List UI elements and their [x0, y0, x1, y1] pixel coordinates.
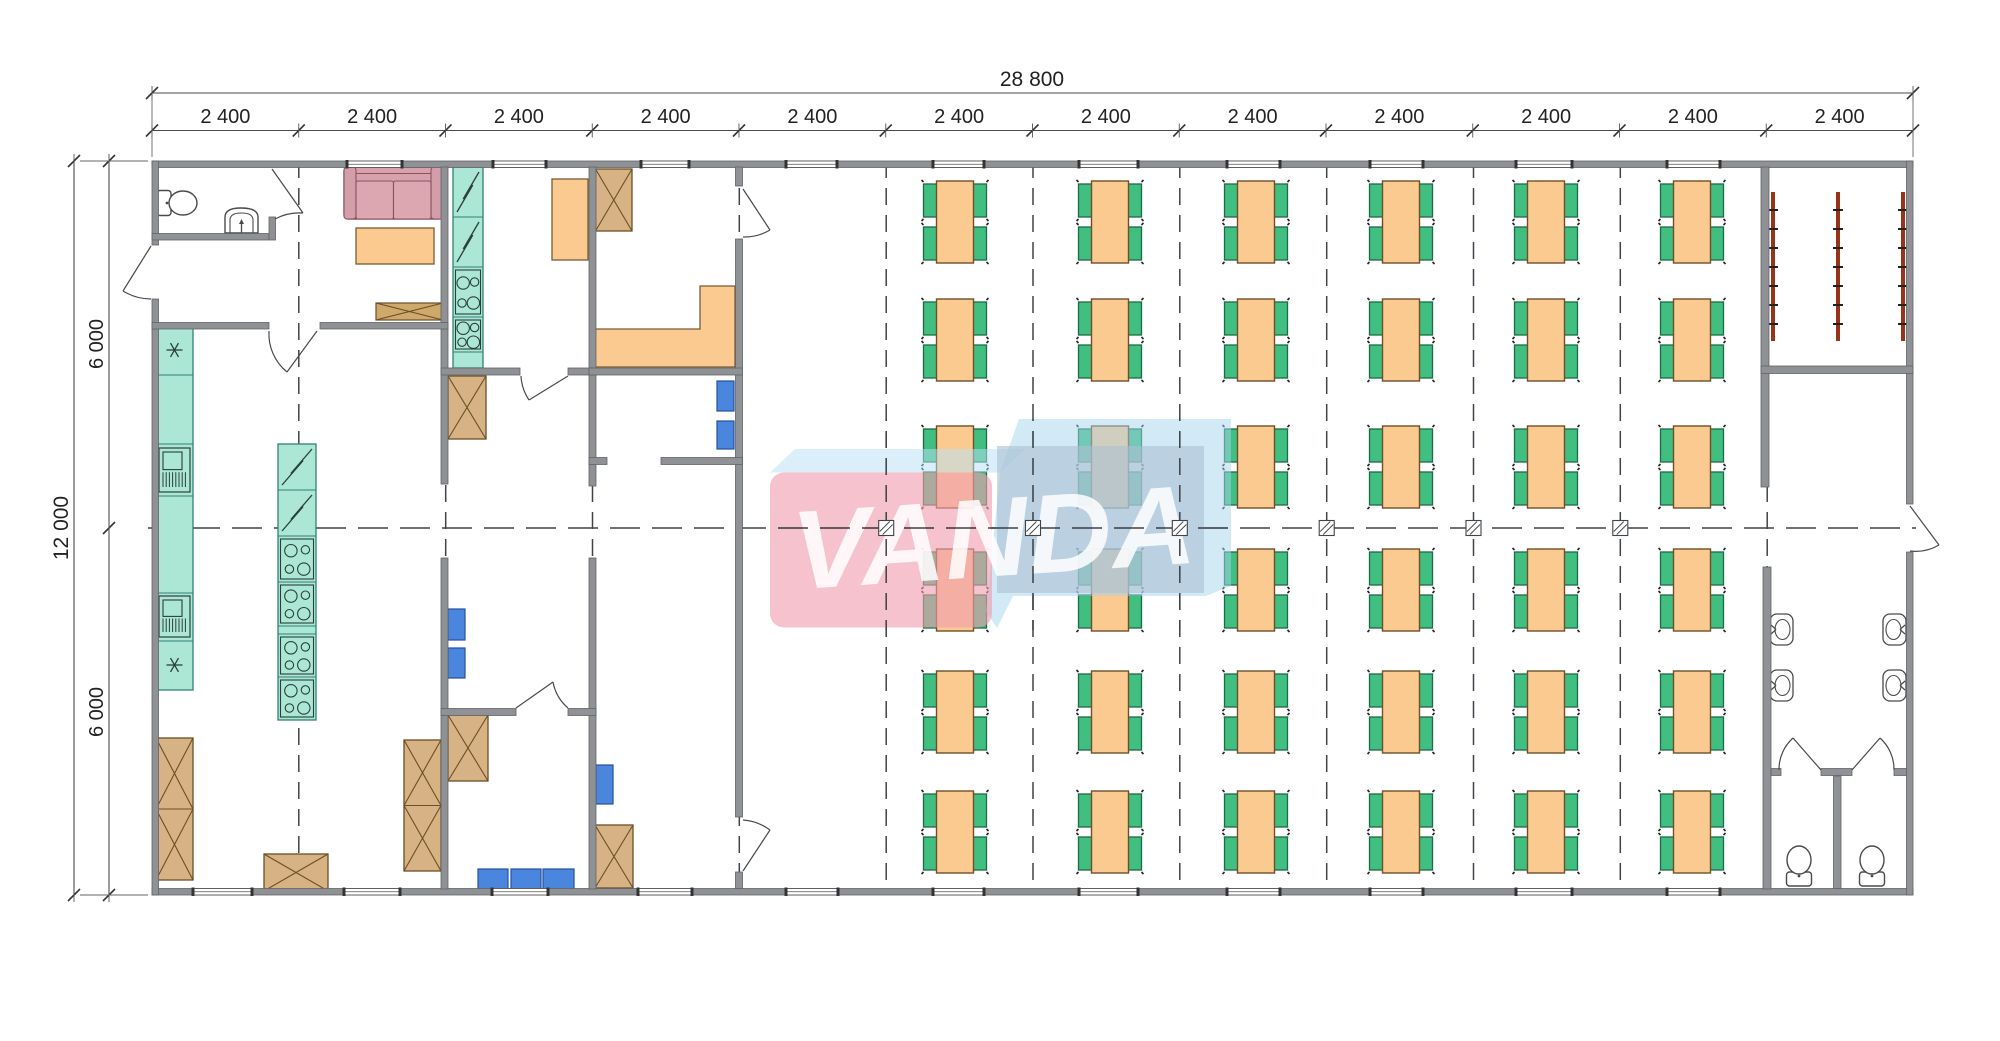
svg-text:28 800: 28 800	[1000, 68, 1064, 91]
svg-text:2 400: 2 400	[1228, 106, 1278, 128]
svg-text:2 400: 2 400	[1081, 106, 1131, 128]
svg-text:2 400: 2 400	[1521, 106, 1571, 128]
svg-text:VANDA: VANDA	[788, 462, 1199, 613]
svg-text:6 000: 6 000	[86, 687, 108, 737]
svg-text:12 000: 12 000	[50, 496, 73, 560]
svg-text:6 000: 6 000	[86, 319, 108, 369]
svg-text:2 400: 2 400	[494, 106, 544, 128]
svg-text:2 400: 2 400	[1815, 106, 1865, 128]
svg-text:2 400: 2 400	[1374, 106, 1424, 128]
svg-text:2 400: 2 400	[200, 106, 250, 128]
svg-text:2 400: 2 400	[787, 106, 837, 128]
svg-text:2 400: 2 400	[934, 106, 984, 128]
svg-text:2 400: 2 400	[1668, 106, 1718, 128]
svg-text:2 400: 2 400	[641, 106, 691, 128]
svg-text:2 400: 2 400	[347, 106, 397, 128]
